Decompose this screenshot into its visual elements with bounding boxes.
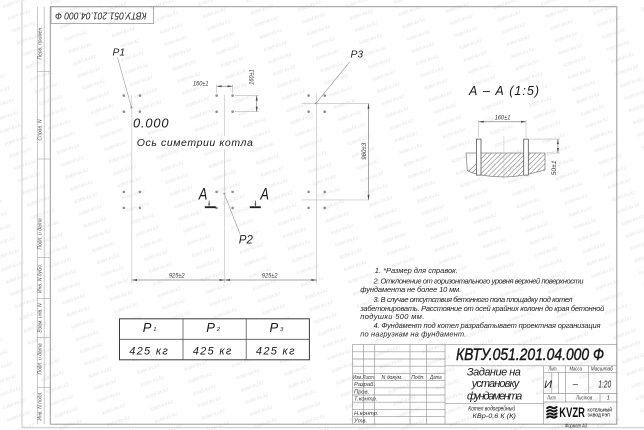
svg-text:по нагрузкам на фундамент.: по нагрузкам на фундамент. [360,329,466,338]
svg-text:425 кг: 425 кг [256,346,295,358]
svg-text:Ось симетрии котла: Ось симетрии котла [137,137,253,149]
svg-text:–: – [572,379,579,389]
svg-text:И: И [544,379,552,391]
svg-text:Р3: Р3 [351,50,364,61]
svg-text:Взам. инв. N: Взам. инв. N [37,303,43,333]
svg-text:Справ. N: Справ. N [37,119,43,140]
svg-text:Н.контр.: Н.контр. [354,411,379,417]
svg-text:Инв. N подл.: Инв. N подл. [37,391,43,420]
svg-text:А: А [198,186,208,204]
svg-text:Задание на: Задание на [467,366,521,378]
svg-text:Изм.Лист: Изм.Лист [353,375,374,381]
svg-text:1: 1 [607,395,610,401]
svg-text:960±3: 960±3 [361,143,368,160]
svg-text:ЗАВОД РЭП: ЗАВОД РЭП [588,412,610,417]
svg-text:Р1: Р1 [113,48,126,59]
svg-text:1. *Размер для справок.: 1. *Размер для справок. [375,266,458,275]
svg-text:Котел водогрейный: Котел водогрейный [468,404,515,412]
svg-text:925±2: 925±2 [262,273,278,280]
svg-text:0.000: 0.000 [133,115,169,130]
svg-text:Масса: Масса [569,367,582,373]
svg-text:925±2: 925±2 [169,273,185,280]
svg-text:1:20: 1:20 [598,380,611,391]
svg-text:3. В случае отсутствия бетонно: 3. В случае отсутствия бетонного пола пл… [374,295,574,304]
svg-text:Инв. N дубл.: Инв. N дубл. [37,264,43,293]
svg-text:Утв.: Утв. [353,418,367,424]
svg-text:КВТУ.051.201.04.000 Ф: КВТУ.051.201.04.000 Ф [55,9,147,20]
svg-text:Лит.: Лит. [548,367,558,373]
svg-text:50±1: 50±1 [551,160,558,175]
svg-text:Дата: Дата [429,375,442,381]
svg-text:А – А (1:5): А – А (1:5) [468,84,539,98]
svg-text:160±1: 160±1 [248,69,255,85]
svg-text:N докум.: N докум. [382,375,403,381]
svg-text:Перв. примен.: Перв. примен. [37,26,43,59]
svg-text:Формат А3: Формат А3 [565,424,588,430]
svg-text:Пров.: Пров. [354,389,369,395]
svg-text:фундамента: фундамента [467,390,522,402]
svg-text:фундамента не более 10 мм.: фундамента не более 10 мм. [360,285,461,294]
svg-text:А: А [260,186,270,204]
svg-text:Т.контр.: Т.контр. [354,396,377,402]
svg-text:Р2: Р2 [239,234,254,246]
svg-text:Разраб.: Разраб. [354,382,375,388]
svg-text:425 кг: 425 кг [193,346,232,358]
svg-text:КВр-0,6 К (К): КВр-0,6 К (К) [473,413,516,420]
svg-text:Подп. и дата: Подп. и дата [37,218,43,250]
svg-text:Масштаб: Масштаб [591,367,614,373]
svg-text:установку: установку [471,378,521,390]
svg-text:подушки 500 мм.: подушки 500 мм. [360,312,424,321]
svg-text:KVZR: KVZR [559,405,585,420]
svg-text:Листов: Листов [575,395,592,401]
svg-text:425 кг: 425 кг [129,346,168,358]
svg-text:КВТУ.051.201.04.000 Ф: КВТУ.051.201.04.000 Ф [456,346,604,364]
svg-text:160±1: 160±1 [193,80,209,87]
svg-text:Лист: Лист [547,395,556,401]
svg-text:Подп. и дата: Подп. и дата [37,343,43,375]
svg-text:Подп.: Подп. [411,375,425,381]
svg-text:160±1: 160±1 [495,114,511,121]
